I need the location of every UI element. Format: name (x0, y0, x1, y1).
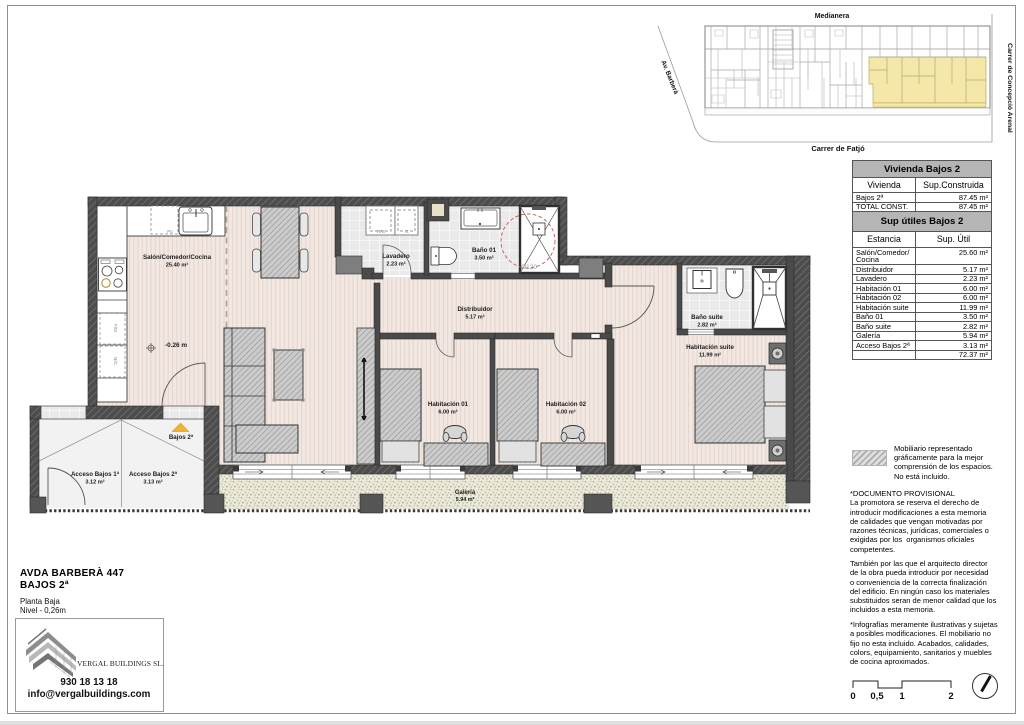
svg-text:Habitación 02: Habitación 02 (546, 401, 587, 408)
svg-text:Acceso Bajos 1ª: Acceso Bajos 1ª (71, 471, 120, 478)
svg-text:Acceso Bajos 2ª: Acceso Bajos 2ª (129, 471, 178, 478)
svg-text:2.23 m²: 2.23 m² (386, 261, 405, 268)
svg-text:5.17 m²: 5.17 m² (465, 314, 484, 321)
svg-text:Pp: Pp (167, 229, 173, 234)
svg-text:Bajos 2ª: Bajos 2ª (169, 434, 194, 441)
svg-text:Habitación suite: Habitación suite (686, 344, 734, 351)
svg-text:Medianera: Medianera (815, 13, 850, 20)
svg-text:R/S: R/S (377, 229, 385, 235)
svg-text:0: 0 (850, 691, 855, 702)
svg-text:-0.26 m: -0.26 m (165, 342, 187, 349)
svg-text:Baño suite: Baño suite (691, 314, 723, 321)
svg-text:Habitación 01: Habitación 01 (428, 401, 469, 408)
svg-text:25.40 m²: 25.40 m² (166, 262, 189, 269)
svg-text:Distribuidor: Distribuidor (457, 306, 493, 313)
svg-text:Lavadero: Lavadero (382, 253, 410, 260)
svg-text:Carrer de Concepció Arenal: Carrer de Concepció Arenal (1006, 43, 1013, 133)
svg-text:Ø120: Ø120 (521, 264, 537, 271)
svg-text:3.12 m²: 3.12 m² (85, 479, 104, 486)
svg-text:Baño 01: Baño 01 (472, 247, 497, 254)
svg-text:1: 1 (899, 691, 905, 702)
svg-text:6.00 m²: 6.00 m² (438, 409, 457, 416)
svg-text:3.13 m²: 3.13 m² (143, 479, 162, 486)
svg-text:2: 2 (948, 691, 953, 702)
svg-text:5.94 m²: 5.94 m² (456, 497, 475, 503)
svg-text:0,5: 0,5 (870, 691, 884, 702)
svg-text:Galería: Galería (455, 490, 476, 496)
svg-text:Salón/Comedor/Cocina: Salón/Comedor/Cocina (143, 254, 212, 261)
svg-text:F/M: F/M (113, 324, 118, 332)
svg-text:Carrer de Fatjó: Carrer de Fatjó (811, 144, 865, 153)
svg-text:2.82 m²: 2.82 m² (697, 322, 716, 329)
svg-text:C: C (405, 229, 409, 235)
svg-text:N/C: N/C (113, 357, 118, 366)
svg-text:6.00 m²: 6.00 m² (556, 409, 575, 416)
svg-text:11.99 m²: 11.99 m² (699, 352, 721, 359)
svg-text:3.50 m²: 3.50 m² (474, 255, 493, 262)
